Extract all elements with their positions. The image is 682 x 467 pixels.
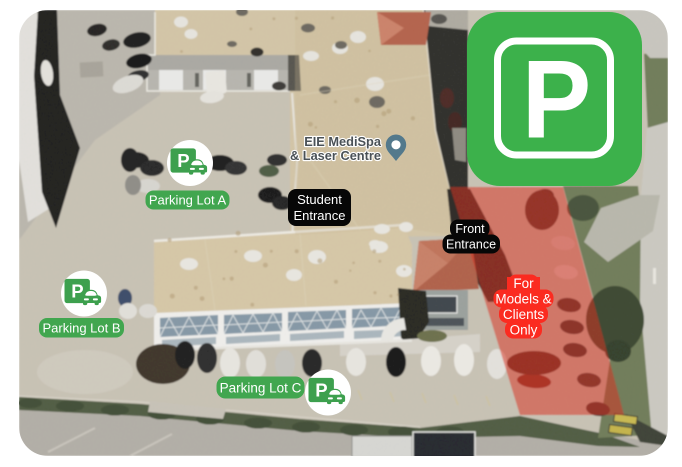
svg-text:Clients: Clients — [503, 307, 545, 322]
svg-text:& Laser Centre: & Laser Centre — [290, 148, 381, 163]
svg-text:Only: Only — [510, 323, 538, 338]
svg-text:Models &: Models & — [495, 292, 551, 307]
svg-text:Front: Front — [455, 222, 485, 236]
svg-text:Parking Lot C: Parking Lot C — [220, 381, 302, 396]
svg-text:Parking Lot A: Parking Lot A — [149, 193, 227, 208]
svg-text:Student: Student — [297, 192, 342, 207]
svg-text:Entrance: Entrance — [446, 238, 496, 252]
svg-text:Parking Lot B: Parking Lot B — [42, 321, 120, 336]
svg-text:Entrance: Entrance — [293, 208, 345, 223]
svg-text:P: P — [522, 37, 591, 162]
svg-text:EIE MediSpa: EIE MediSpa — [304, 134, 382, 149]
svg-text:For: For — [513, 276, 534, 291]
